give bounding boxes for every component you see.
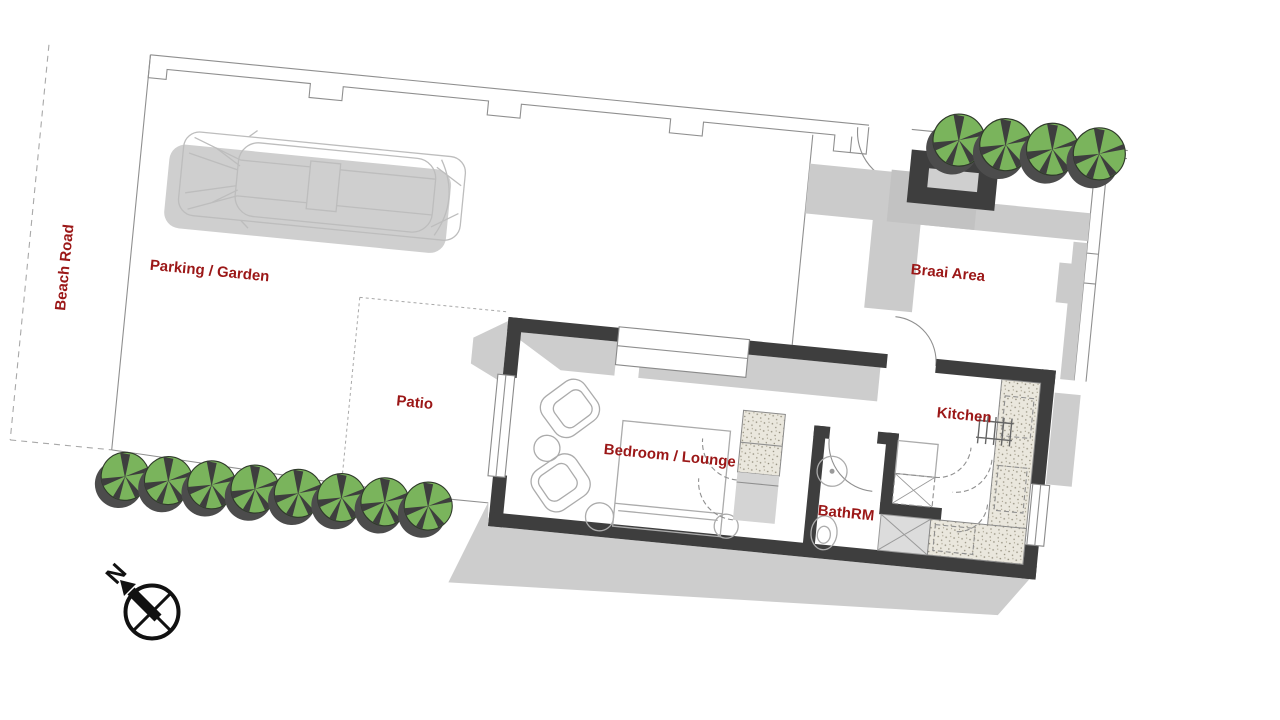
floor-plan-canvas: Beach Road [0, 0, 1280, 720]
label-parking-garden: Parking / Garden [149, 257, 270, 286]
label-beach-road: Beach Road [52, 223, 77, 311]
label-patio: Patio [396, 392, 434, 412]
north-compass: N [101, 559, 179, 639]
shower [878, 514, 931, 555]
beach-road: Beach Road [10, 45, 150, 450]
trees-bottom-row [93, 450, 455, 541]
north-needle [131, 591, 158, 618]
parked-car [163, 122, 468, 255]
braai-left-fence [792, 135, 813, 347]
site-plan: Beach Road [1, 25, 1130, 644]
label-braai-area: Braai Area [910, 261, 986, 285]
